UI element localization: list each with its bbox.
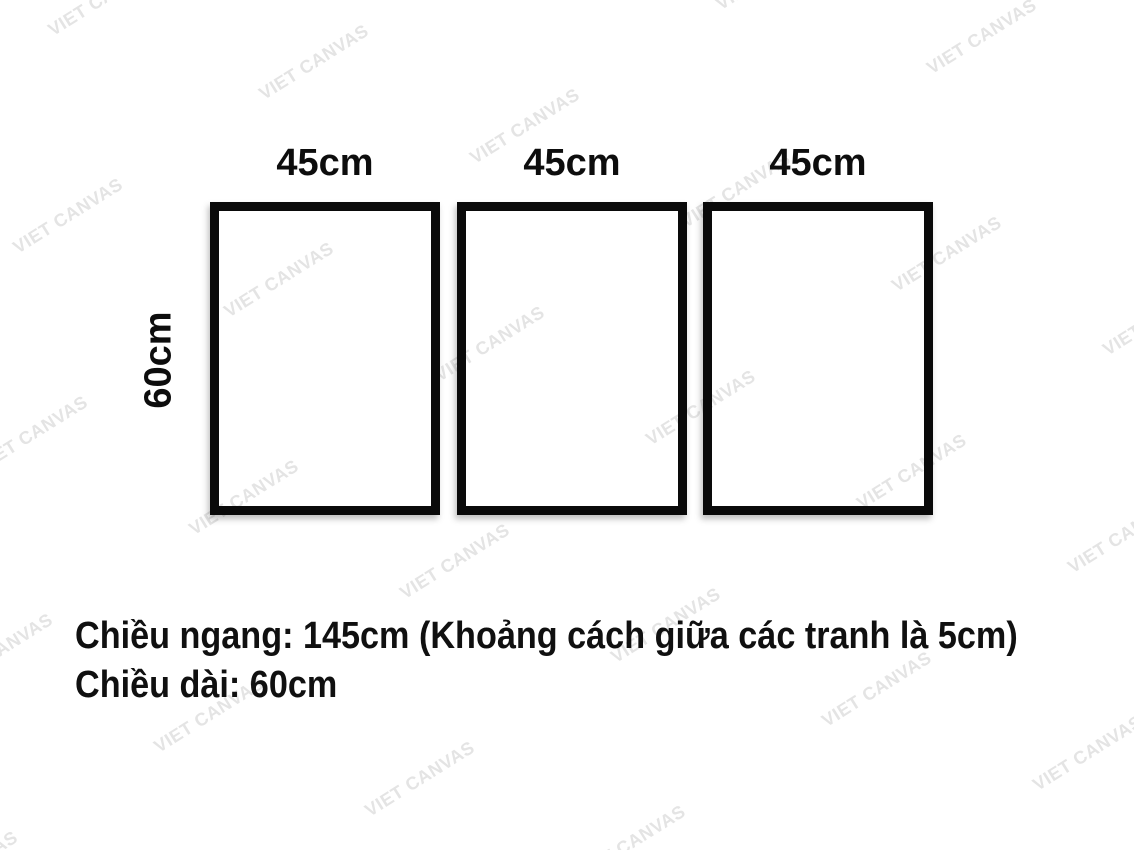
note-vertical-dimension: Chiều dài: 60cm [75,661,1018,710]
watermark-text: VIET CANVAS [0,609,57,693]
watermark-text: VIET CANVAS [1029,711,1134,795]
watermark-text: VIET CANVAS [1099,276,1134,360]
frame-2-width-label: 45cm [457,140,687,186]
watermark-text: VIET CANVAS [361,737,478,821]
frame-3 [703,202,933,515]
frame-2 [457,202,687,515]
frames-height-label: 60cm [138,311,181,408]
frame-1 [210,202,440,515]
frame-3-width-label: 45cm [703,140,933,186]
watermark-text: VIET CANVAS [1064,494,1134,578]
frame-1-width-label: 45cm [210,140,440,186]
dimension-notes: Chiều ngang: 145cm (Khoảng cách giữa các… [75,612,1018,710]
note-horizontal-dimension: Chiều ngang: 145cm (Khoảng cách giữa các… [75,612,1018,661]
watermark-text: VIET CANVAS [712,0,829,15]
watermark-text: VIET CANVAS [255,20,372,104]
watermark-text: VIET CANVAS [9,174,126,258]
watermark-text: VIET CANVAS [0,827,22,850]
watermark-text: VIET CANVAS [0,392,92,476]
frame-dimension-diagram: VIET CANVASVIET CANVASVIET CANVASVIET CA… [0,0,1134,850]
watermark-text: VIET CANVAS [923,0,1040,79]
watermark-text: VIET CANVAS [396,520,513,604]
watermark-text: VIET CANVAS [572,801,689,850]
watermark-text: VIET CANVAS [44,0,161,41]
